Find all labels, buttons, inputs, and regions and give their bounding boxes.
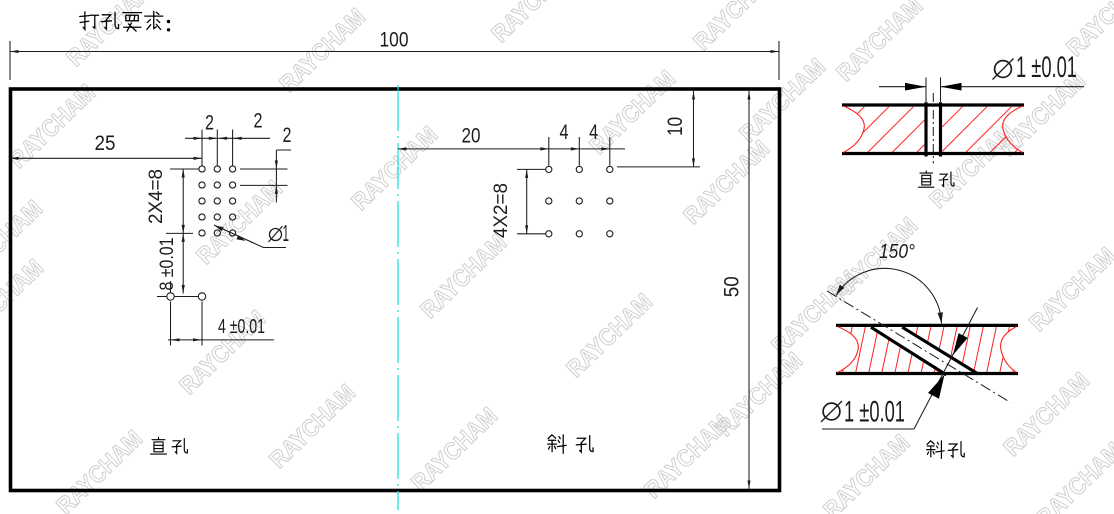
svg-text:1: 1 <box>283 220 290 246</box>
svg-text:150°: 150° <box>879 241 915 263</box>
svg-text:4: 4 <box>560 121 569 144</box>
svg-text:2: 2 <box>254 110 263 133</box>
svg-text:4: 4 <box>589 121 598 144</box>
svg-text:100: 100 <box>380 29 409 52</box>
svg-text:1 ±0.01: 1 ±0.01 <box>844 396 905 429</box>
svg-text:2X4=8: 2X4=8 <box>146 169 167 224</box>
svg-text:10: 10 <box>664 117 687 136</box>
svg-text:4 ±0.01: 4 ±0.01 <box>218 316 265 338</box>
svg-text:20: 20 <box>462 125 481 148</box>
svg-text:4X2=8: 4X2=8 <box>491 183 512 238</box>
svg-text:1 ±0.01: 1 ±0.01 <box>1016 51 1077 84</box>
svg-text:8 ±0.01: 8 ±0.01 <box>157 238 178 291</box>
svg-text:2: 2 <box>283 124 292 147</box>
svg-text:25: 25 <box>95 132 116 155</box>
svg-text:50: 50 <box>721 276 744 297</box>
svg-text:2: 2 <box>205 112 214 135</box>
